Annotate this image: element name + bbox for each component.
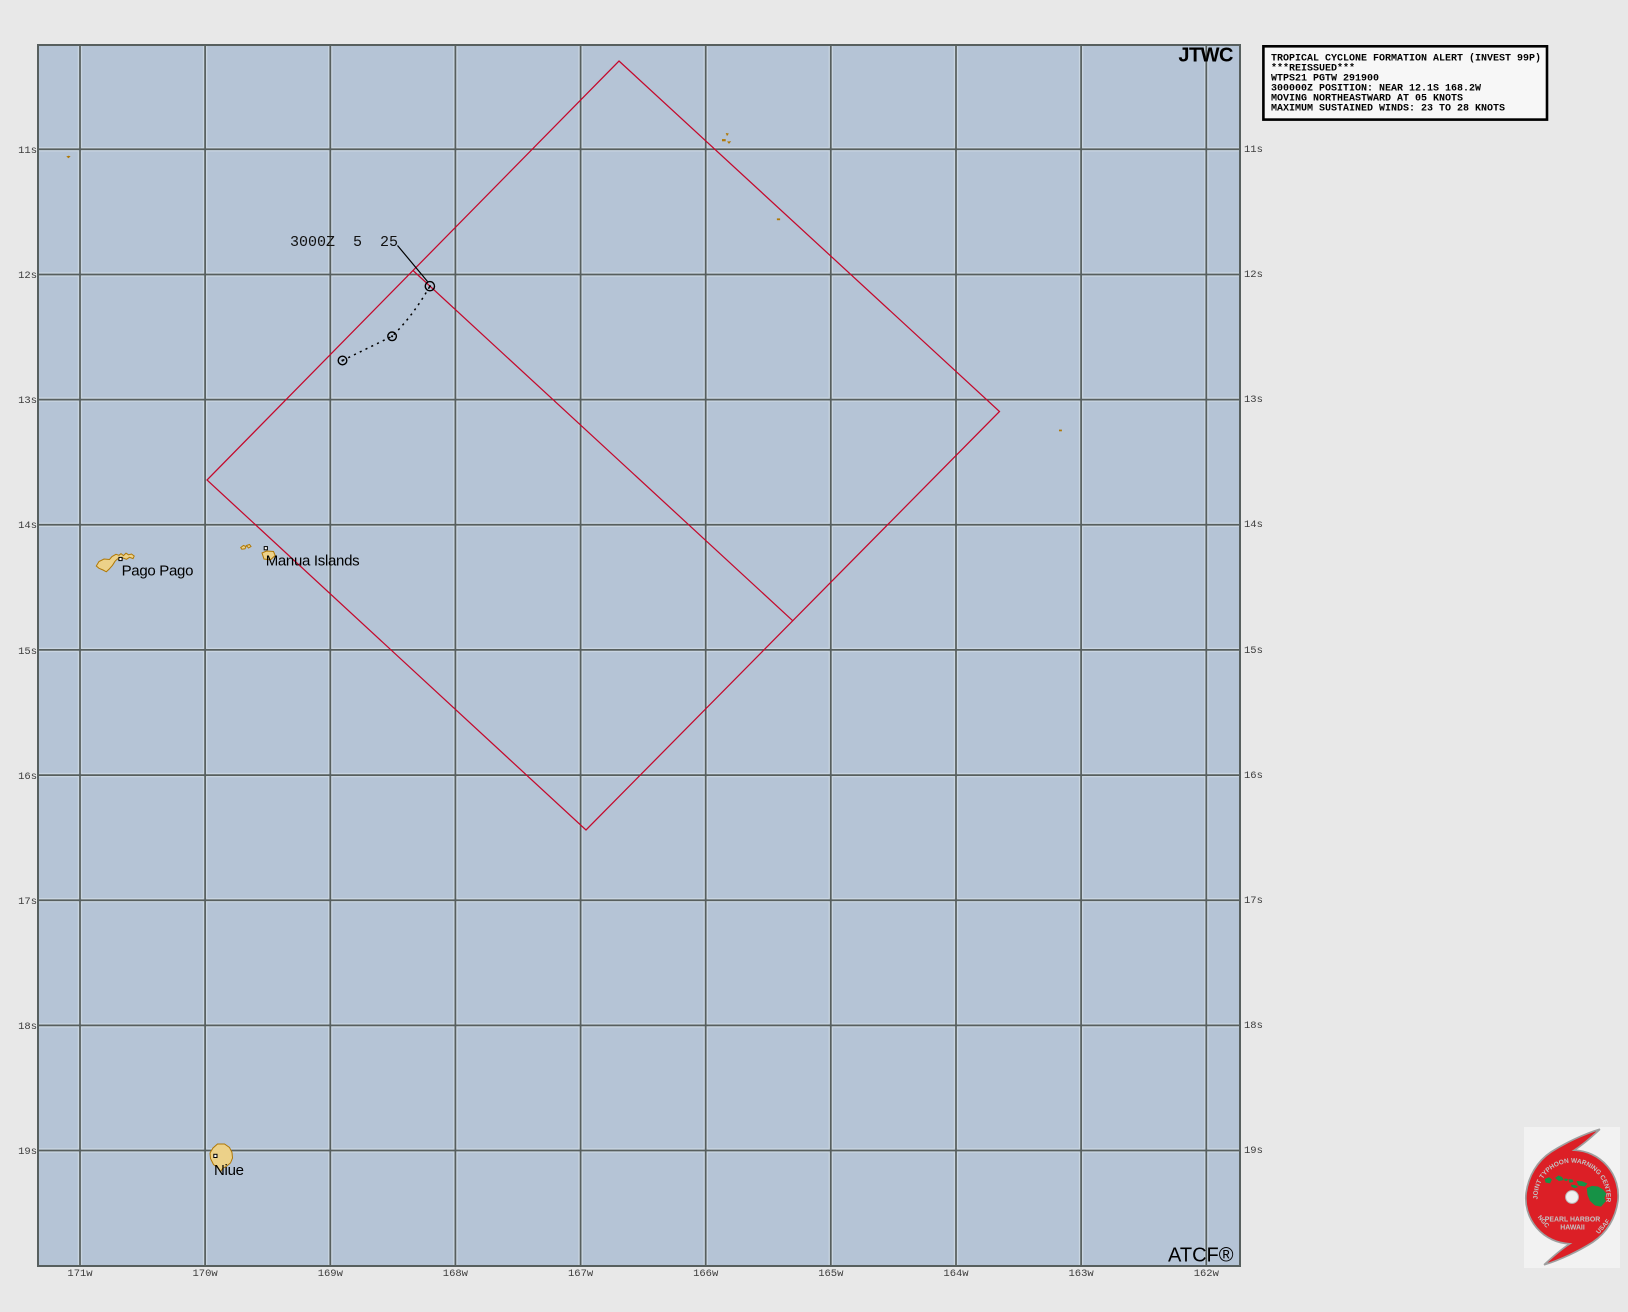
svg-text:14s: 14s — [1244, 519, 1263, 531]
svg-text:164w: 164w — [943, 1268, 969, 1280]
svg-text:Pago Pago: Pago Pago — [122, 563, 194, 580]
svg-text:168w: 168w — [443, 1268, 469, 1280]
svg-text:165w: 165w — [818, 1268, 844, 1280]
svg-text:13s: 13s — [1244, 394, 1263, 406]
svg-text:162w: 162w — [1194, 1268, 1220, 1280]
svg-text:11s: 11s — [1244, 144, 1263, 156]
svg-text:HAWAII: HAWAII — [1560, 1225, 1585, 1232]
svg-text:12s: 12s — [1244, 269, 1263, 281]
svg-text:PEARL HARBOR: PEARL HARBOR — [1545, 1217, 1600, 1224]
svg-text:Niue: Niue — [214, 1162, 244, 1179]
svg-text:169w: 169w — [318, 1268, 344, 1280]
svg-text:19s: 19s — [1244, 1145, 1263, 1157]
svg-text:16s: 16s — [1244, 770, 1263, 782]
svg-text:166w: 166w — [693, 1268, 719, 1280]
svg-text:14s: 14s — [18, 520, 37, 532]
svg-text:3000Z 5 25: 3000Z 5 25 — [290, 234, 398, 251]
svg-text:17s: 17s — [18, 896, 37, 908]
svg-text:16s: 16s — [18, 771, 37, 783]
svg-text:171w: 171w — [67, 1268, 93, 1280]
svg-text:167w: 167w — [568, 1268, 594, 1280]
svg-text:17s: 17s — [1244, 895, 1263, 907]
svg-text:163w: 163w — [1068, 1268, 1094, 1280]
svg-text:18s: 18s — [18, 1021, 37, 1033]
svg-text:ATCF®: ATCF® — [1168, 1245, 1234, 1267]
svg-text:12s: 12s — [18, 270, 37, 282]
svg-text:13s: 13s — [18, 395, 37, 407]
svg-text:15s: 15s — [18, 646, 37, 658]
svg-text:11s: 11s — [18, 145, 37, 157]
svg-text:19s: 19s — [18, 1146, 37, 1158]
svg-text:MAXIMUM SUSTAINED WINDS: 23 TO: MAXIMUM SUSTAINED WINDS: 23 TO 28 KNOTS — [1271, 104, 1505, 115]
svg-text:18s: 18s — [1244, 1020, 1263, 1032]
svg-text:170w: 170w — [192, 1268, 218, 1280]
svg-text:15s: 15s — [1244, 645, 1263, 657]
svg-text:JTWC: JTWC — [1178, 45, 1233, 67]
svg-text:Manua Islands: Manua Islands — [266, 553, 360, 570]
